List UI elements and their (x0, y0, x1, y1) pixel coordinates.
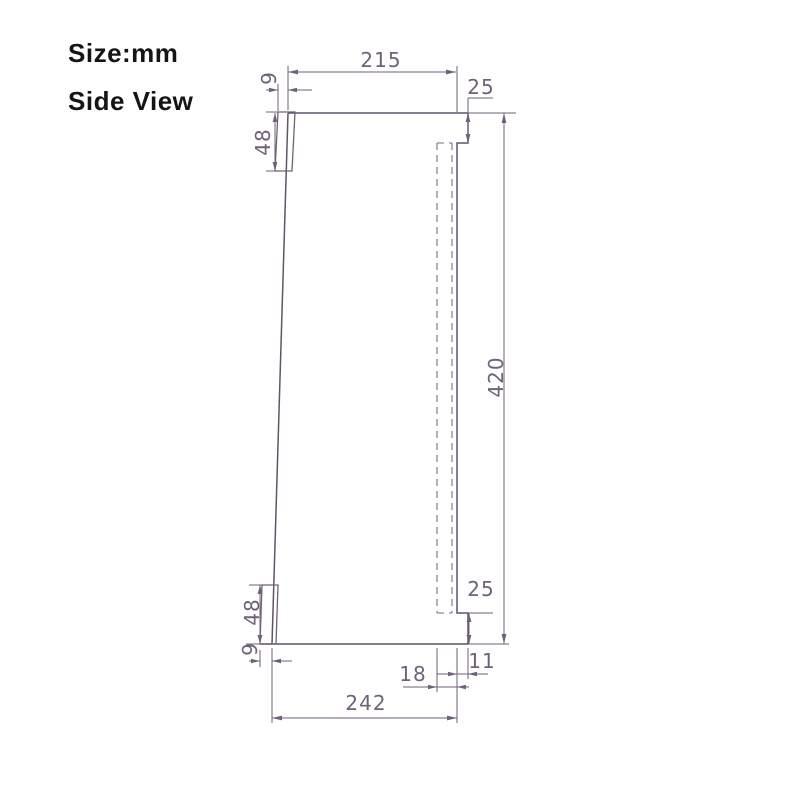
dim-label-bottom-width: 242 (345, 691, 386, 715)
dim-label-overall-height: 420 (484, 356, 508, 397)
hidden-feature-lines (437, 143, 452, 613)
dim-label-bottom-right-inset: 25 (467, 577, 494, 601)
dim-label-edge-width: 11 (468, 649, 495, 673)
dim-label-slot-width: 18 (399, 662, 426, 686)
hinge-bracket-top (275, 112, 295, 171)
dim-label-bottom-offset: 9 (238, 642, 262, 656)
dim-label-top-bracket-height: 48 (251, 128, 275, 155)
dim-label-bottom-bracket-height: 48 (240, 598, 264, 625)
dim-label-top-right-inset: 25 (467, 75, 494, 99)
technical-drawing-page: Size:mm Side View (0, 0, 800, 800)
dim-label-top-offset: 9 (257, 71, 281, 85)
dim-label-top-width: 215 (360, 48, 401, 72)
